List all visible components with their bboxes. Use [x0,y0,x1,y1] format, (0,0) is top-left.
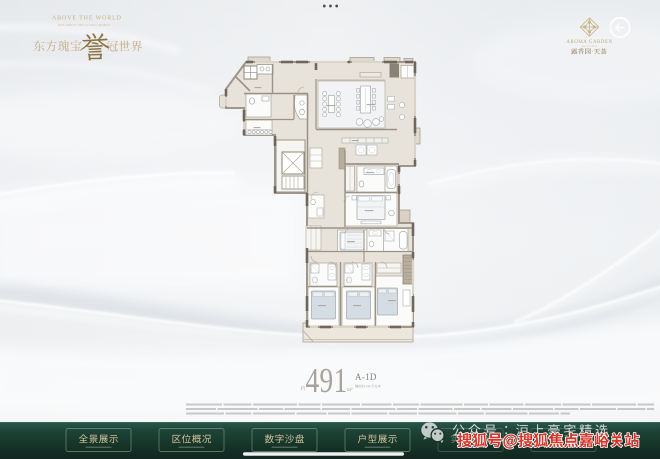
svg-text:AROMA GARDEN: AROMA GARDEN [566,40,612,45]
svg-text:m²: m² [347,387,353,393]
svg-text:A-1D: A-1D [355,372,377,382]
svg-text:ABOVE THE WORLD: ABOVE THE WORLD [52,16,122,22]
svg-text:491: 491 [306,361,348,400]
svg-text:SHANGHAI: SHANGHAI [582,45,598,48]
svg-text:RISE ABOVE THE CLASSIC WORLD: RISE ABOVE THE CLASSIC WORLD [58,24,110,27]
